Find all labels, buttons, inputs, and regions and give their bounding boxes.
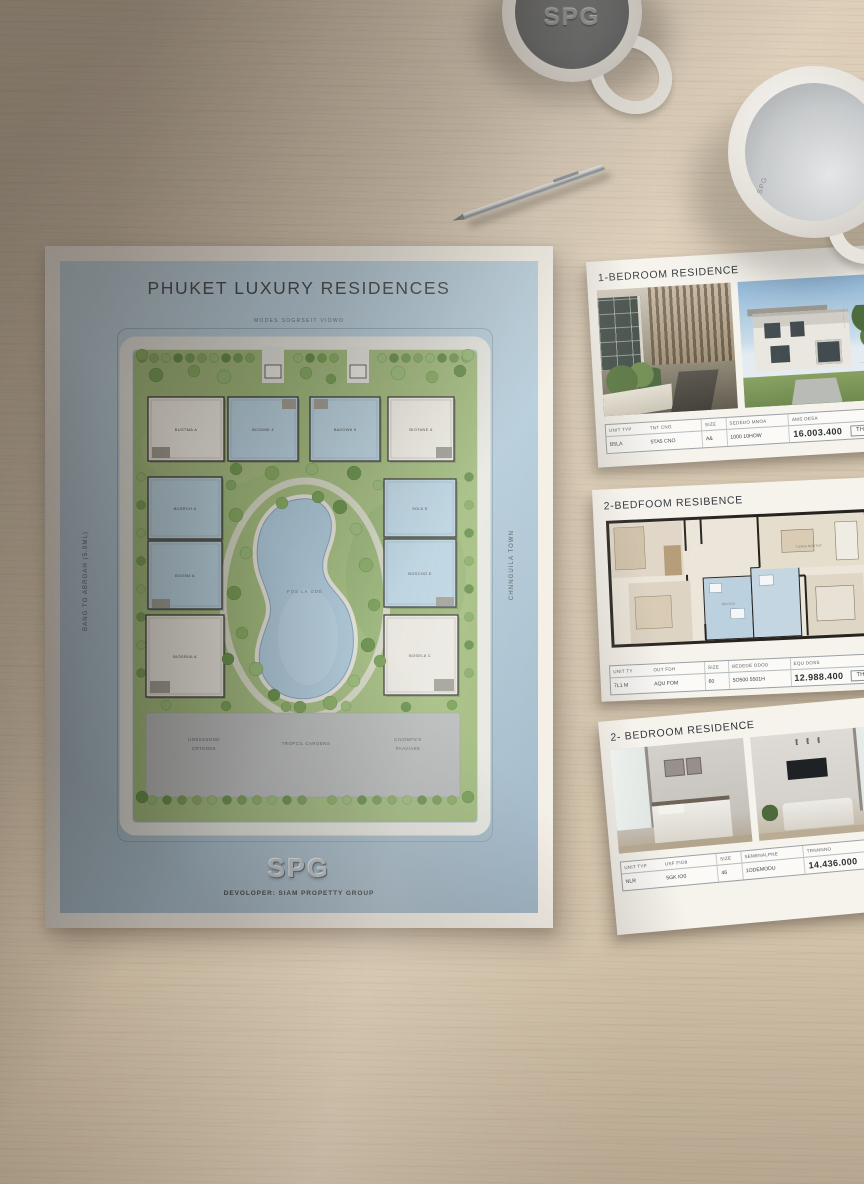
tree <box>137 641 146 650</box>
photo-atrium-interior <box>597 282 738 416</box>
tree <box>448 796 457 805</box>
living-window <box>853 725 864 811</box>
tv-screen <box>787 757 829 779</box>
villa-right-2: BOSCHO E <box>384 539 458 609</box>
tree <box>222 653 234 665</box>
tree <box>178 796 187 805</box>
svg-text:BIOTANE 6: BIOTANE 6 <box>409 427 433 432</box>
tree <box>465 501 474 510</box>
amenity-label-2: TROPCIL CARGENS <box>282 741 330 746</box>
mug-interior <box>745 83 864 221</box>
tree <box>137 669 146 678</box>
bathroom-2 <box>751 566 802 638</box>
villa-top-4: BIOTANE 6 <box>388 397 456 463</box>
tree <box>347 466 361 480</box>
road-label-right: CHNNGUILA TOWN <box>509 500 521 630</box>
villa-top-2: BIOOME 4 <box>228 397 300 463</box>
tree <box>465 473 474 482</box>
wall-art <box>685 756 702 775</box>
tree <box>265 466 279 480</box>
tree <box>217 370 231 384</box>
currency-badge-2: THB <box>850 669 864 681</box>
tree <box>330 354 339 363</box>
poster-blue-panel: PHUKET LUXURY RESIDENCES MODES SOGRSEIT … <box>60 261 538 913</box>
tree <box>246 354 255 363</box>
tree <box>350 523 362 535</box>
tree <box>137 557 146 566</box>
tree <box>137 613 146 622</box>
tree <box>188 365 200 377</box>
tree <box>198 354 207 363</box>
photo-bedroom-interior <box>610 738 752 854</box>
tree <box>136 349 148 361</box>
ceiling-fan <box>795 737 819 745</box>
tree <box>358 796 367 805</box>
house-window <box>815 339 842 365</box>
villa-top-1: BUSTMA A <box>148 397 226 463</box>
tree <box>348 675 360 687</box>
tree <box>401 702 411 712</box>
tree <box>403 796 412 805</box>
tree <box>300 367 312 379</box>
villa-right-3: BOSEL8 C <box>384 615 460 697</box>
tree <box>238 796 247 805</box>
tree <box>136 791 148 803</box>
house-window <box>770 345 790 364</box>
palm-trees <box>843 304 864 364</box>
tree <box>236 627 248 639</box>
tree <box>465 669 474 678</box>
tree <box>283 796 292 805</box>
svg-text:BIOOME 4: BIOOME 4 <box>252 427 274 432</box>
tree <box>222 354 231 363</box>
tree <box>418 796 427 805</box>
spec-table-2: UNIT TY OUT FDH SIZE BEDEDE ODOD EQU DOS… <box>609 653 864 695</box>
house-window <box>763 322 780 338</box>
tree <box>318 354 327 363</box>
currency-badge-1: THB <box>850 424 864 436</box>
tree <box>374 655 386 667</box>
plant <box>761 804 779 832</box>
site-plan: FOS LA ODE UNSSSSOND CRTDNKE TROPCIL CAR… <box>116 327 494 843</box>
tree <box>268 689 280 701</box>
tree <box>148 796 157 805</box>
price-2: 12.988.400 <box>790 668 847 687</box>
tree <box>294 701 306 713</box>
atrium-walkway <box>671 369 719 412</box>
tree <box>281 702 291 712</box>
tree <box>378 354 387 363</box>
villa-top-3: BAVOW6 5 <box>310 397 382 463</box>
tree <box>229 508 243 522</box>
tree <box>388 796 397 805</box>
tree <box>391 366 405 380</box>
poster-subtitle: MODES SOGRSEIT VIOWO <box>60 318 538 324</box>
tree <box>162 354 171 363</box>
tree <box>186 354 195 363</box>
tree <box>193 796 202 805</box>
tree <box>465 613 474 622</box>
tree <box>462 791 474 803</box>
tree <box>137 529 146 538</box>
wall-art <box>664 758 685 777</box>
tree <box>438 354 447 363</box>
photo-house-exterior <box>737 274 864 408</box>
tree <box>373 796 382 805</box>
tree <box>221 701 231 711</box>
tree <box>253 796 262 805</box>
tree <box>240 547 252 559</box>
amenity-label-1: UNSSSSOND <box>188 737 220 742</box>
tree <box>402 354 411 363</box>
tree <box>268 796 277 805</box>
desk-scene: PHUKET LUXURY RESIDENCES MODES SOGRSEIT … <box>0 0 864 1184</box>
tree <box>161 700 171 710</box>
bedroom-window <box>610 747 655 831</box>
svg-text:5OL6 E: 5OL6 E <box>412 506 427 511</box>
pool-label: FOS LA ODE <box>287 589 323 594</box>
tree <box>174 354 183 363</box>
villa-left-2: BOGN4 A <box>148 541 224 611</box>
tree <box>465 641 474 650</box>
tree <box>208 796 217 805</box>
svg-text:BUSTMA A: BUSTMA A <box>175 427 197 432</box>
tree <box>328 796 337 805</box>
villa-right-1: 5OL6 E <box>384 479 458 539</box>
tree <box>333 500 347 514</box>
tree <box>276 497 288 509</box>
svg-text:BAVOW6 5: BAVOW6 5 <box>334 427 357 432</box>
parking-area <box>146 713 460 797</box>
tree <box>465 557 474 566</box>
tree <box>149 368 163 382</box>
svg-text:PAAVIAKE: PAAVIAKE <box>396 746 421 751</box>
mug-spg-logo: SPG <box>502 4 642 32</box>
floor-plan: TUVKD ROUTNT 5BA 5UX <box>602 506 864 652</box>
svg-text:BUSRCH A: BUSRCH A <box>174 506 197 511</box>
tree <box>306 354 315 363</box>
photo-living-room <box>750 725 864 841</box>
tree <box>150 354 159 363</box>
tree <box>341 701 351 711</box>
gatehouse-1 <box>265 365 281 378</box>
svg-text:CRTDNKE: CRTDNKE <box>192 746 216 751</box>
tree <box>234 354 243 363</box>
svg-text:BIOSRU6 A: BIOSRU6 A <box>173 654 197 659</box>
silver-pen <box>462 164 606 221</box>
tree <box>373 480 383 490</box>
road-label-left: BANG TO ABROAH (5.9ML) <box>83 511 95 651</box>
tree <box>454 365 466 377</box>
tree <box>465 585 474 594</box>
tree <box>426 354 435 363</box>
spg-logo: SPG <box>60 853 538 884</box>
master-plan-poster: PHUKET LUXURY RESIDENCES MODES SOGRSEIT … <box>45 246 553 928</box>
tree <box>368 599 380 611</box>
house-window <box>790 321 804 337</box>
tree <box>390 354 399 363</box>
gatehouse-2 <box>350 365 366 378</box>
tree <box>294 354 303 363</box>
tree <box>306 463 318 475</box>
developer-line: DEVOLOPER: SIAM PROPETTY GROUP <box>60 890 538 897</box>
amenity-label-3: CIUOBFN'S <box>394 737 422 742</box>
wood-slats <box>647 282 734 365</box>
tree <box>447 700 457 710</box>
tree <box>361 638 375 652</box>
tree <box>323 696 337 710</box>
tree <box>465 529 474 538</box>
tree <box>223 796 232 805</box>
tree <box>426 371 438 383</box>
svg-text:BOSCHO E: BOSCHO E <box>408 571 432 576</box>
tree <box>163 796 172 805</box>
tree <box>359 558 373 572</box>
card-2bedroom-interior: 2- BEDROOM RESIDENCE UNIT TYP <box>598 696 864 936</box>
tree <box>137 473 146 482</box>
price-1: 16.003.400 <box>788 423 846 442</box>
svg-text:BOGN4 A: BOGN4 A <box>175 573 195 578</box>
driveway <box>792 378 843 405</box>
tree <box>326 374 336 384</box>
tree <box>343 796 352 805</box>
tree <box>462 349 474 361</box>
floorplan-bath-label: 5BA 5UX <box>722 602 736 607</box>
tree <box>137 501 146 510</box>
tree <box>312 491 324 503</box>
villa-left-1: BUSRCH A <box>148 477 224 541</box>
poster-title: PHUKET LUXURY RESIDENCES <box>60 278 538 299</box>
tree <box>298 796 307 805</box>
tree <box>414 354 423 363</box>
tree <box>230 463 242 475</box>
tree <box>450 354 459 363</box>
tree <box>210 354 219 363</box>
tree <box>433 796 442 805</box>
tree <box>227 586 241 600</box>
spec-table-1: UNIT TYP TNT CNO SIZE SEDEDO MNOA AMS OE… <box>605 408 864 454</box>
card-2bedroom-plan: 2-BEDFOOM RESIBENCE TUVKD ROUTNT 5BA 5UX <box>592 477 864 702</box>
tree <box>137 585 146 594</box>
tree <box>249 662 263 676</box>
villa-left-3: BIOSRU6 A <box>146 615 226 699</box>
tree <box>226 480 236 490</box>
svg-text:BOSEL8 C: BOSEL8 C <box>409 653 431 658</box>
